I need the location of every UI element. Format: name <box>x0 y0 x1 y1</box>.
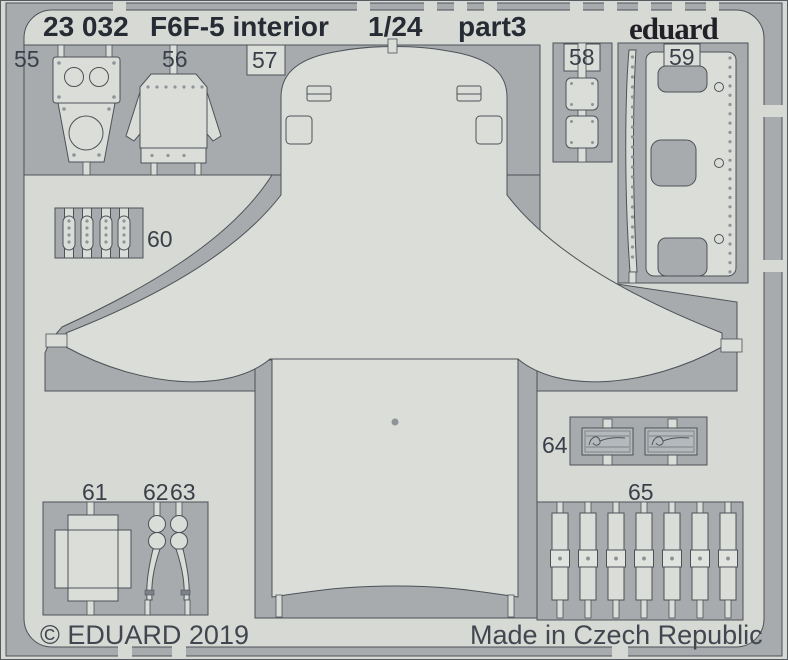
brand-logo: eduard <box>629 11 719 46</box>
side-panel-right <box>476 116 502 144</box>
part-label-59: 59 <box>669 44 695 70</box>
part-label-58: 58 <box>569 44 595 70</box>
part-label-55: 55 <box>14 46 40 72</box>
panel-hole <box>392 419 399 426</box>
part-label-63: 63 <box>170 479 196 505</box>
fret-svg: 23 032 F6F-5 interior 1/24 part3 eduard … <box>0 0 788 660</box>
made-in-text: Made in Czech Republic <box>470 620 763 650</box>
wing-tab-right <box>721 339 742 352</box>
part-label-61: 61 <box>82 479 108 505</box>
part-label-62: 62 <box>143 479 169 505</box>
photo-etch-fret-sheet: 23 032 F6F-5 interior 1/24 part3 eduard … <box>0 0 788 660</box>
part-label-60: 60 <box>147 226 173 252</box>
side-panel-left <box>286 116 312 144</box>
part-number-text: part3 <box>458 11 526 42</box>
wing-tab-left <box>46 334 67 347</box>
part-57-lower-panel <box>272 353 518 617</box>
placard-2 <box>645 428 697 455</box>
part-label-65: 65 <box>628 479 654 505</box>
catalog-number: 23 032 <box>43 11 129 42</box>
part-label-64: 64 <box>542 432 568 458</box>
scale: 1/24 <box>368 11 423 42</box>
placard-1 <box>582 428 633 455</box>
product-name: F6F-5 interior <box>150 11 329 42</box>
part-label-56: 56 <box>162 46 188 72</box>
part-label-57: 57 <box>252 47 278 73</box>
copyright-text: © EDUARD 2019 <box>40 620 249 650</box>
